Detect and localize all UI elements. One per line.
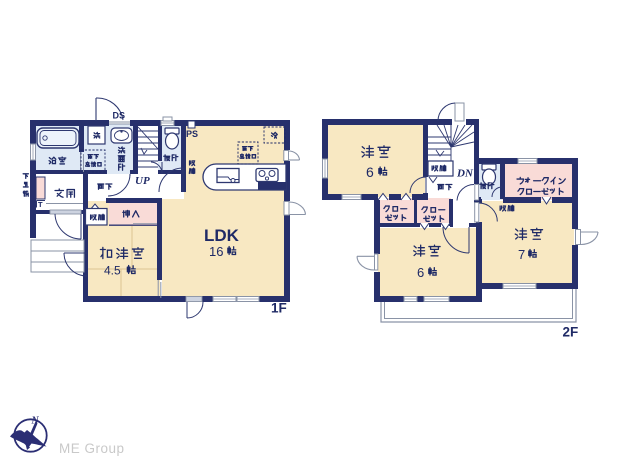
svg-text:1F: 1F bbox=[271, 301, 287, 316]
svg-text:T: T bbox=[38, 200, 43, 209]
svg-text:4.5: 4.5 bbox=[104, 264, 121, 278]
svg-text:ME Group: ME Group bbox=[59, 441, 125, 456]
svg-text:DN: DN bbox=[456, 168, 474, 180]
svg-text:DS: DS bbox=[113, 111, 126, 121]
svg-text:UP: UP bbox=[135, 175, 150, 187]
svg-text:2F: 2F bbox=[563, 325, 579, 340]
svg-text:7: 7 bbox=[518, 247, 525, 262]
svg-text:6: 6 bbox=[417, 265, 424, 280]
svg-text:6: 6 bbox=[366, 164, 374, 180]
svg-text:N: N bbox=[31, 416, 40, 427]
svg-text:16: 16 bbox=[209, 244, 223, 259]
svg-text:LDK: LDK bbox=[204, 226, 240, 245]
svg-text:PS: PS bbox=[186, 129, 198, 139]
